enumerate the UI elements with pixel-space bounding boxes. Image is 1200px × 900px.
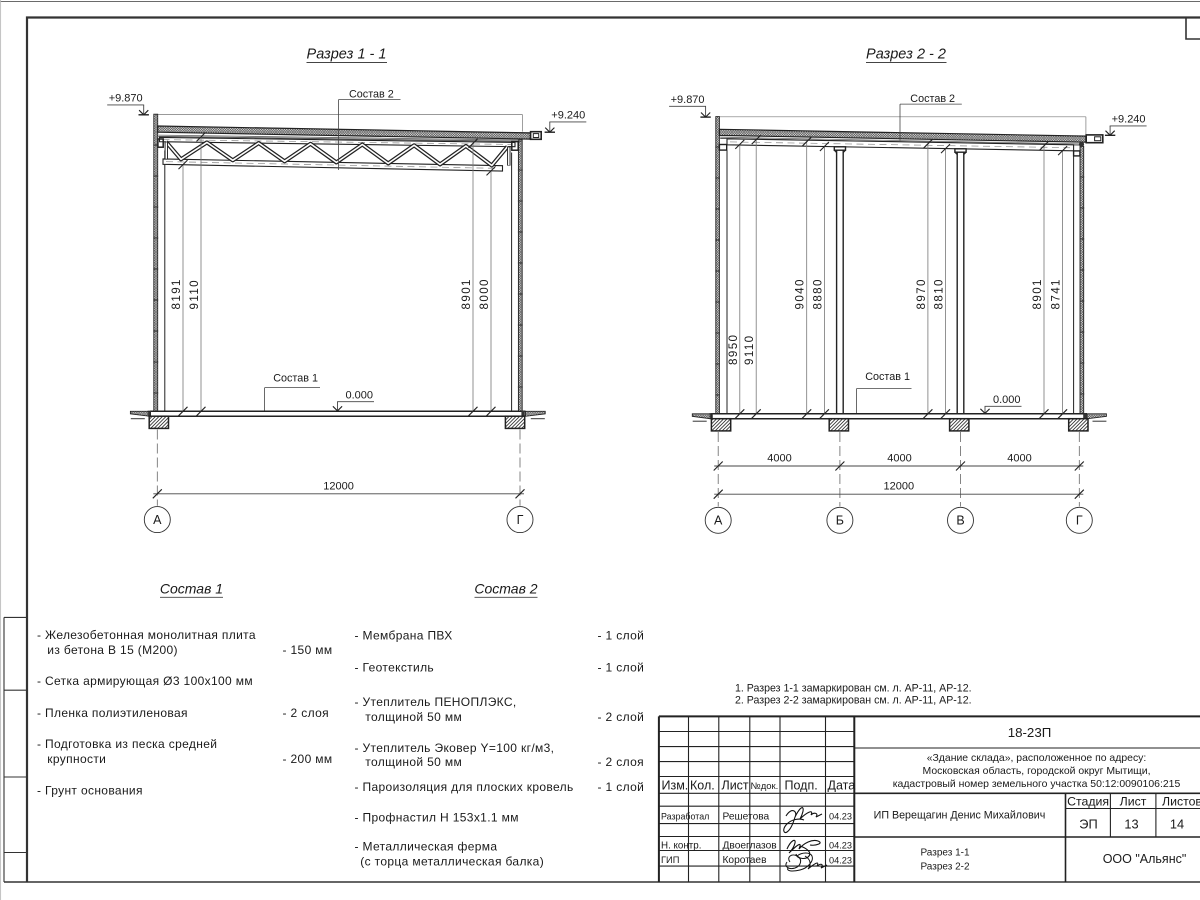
svg-text:04.23: 04.23 [829, 841, 852, 851]
svg-text:- Пленка полиэтиленовая: - Пленка полиэтиленовая [37, 706, 188, 720]
svg-text:ООО "Альянс": ООО "Альянс" [1103, 852, 1187, 866]
svg-text:Решетова: Решетова [723, 812, 770, 823]
svg-text:Н. контр.: Н. контр. [661, 841, 701, 852]
svg-text:ГИП: ГИП [661, 855, 679, 865]
svg-text:13: 13 [1124, 816, 1138, 831]
svg-text:Разрез 1 - 1: Разрез 1 - 1 [307, 47, 387, 63]
svg-text:Состав 1: Состав 1 [865, 371, 910, 383]
svg-text:+9.870: +9.870 [671, 94, 705, 106]
svg-text:Кол.: Кол. [690, 779, 715, 793]
svg-text:- Подготовка из песка средней: - Подготовка из песка средней [37, 737, 217, 751]
svg-text:- Грунт основания: - Грунт основания [37, 784, 143, 798]
svg-text:Состав 2: Состав 2 [349, 88, 394, 100]
svg-text:Состав 2: Состав 2 [910, 93, 955, 105]
svg-text:- Профнастил Н 153х1.1 мм: - Профнастил Н 153х1.1 мм [355, 810, 519, 824]
svg-text:А: А [153, 513, 162, 527]
svg-text:Г: Г [517, 513, 524, 527]
svg-text:8000: 8000 [478, 278, 491, 309]
svg-text:4000: 4000 [767, 453, 791, 465]
svg-text:- Железобетонная монолитная п: - Железобетонная монолитная плита [37, 628, 256, 642]
svg-text:ИП Верещагин Денис Михайлович: ИП Верещагин Денис Михайлович [874, 810, 1046, 822]
svg-text:9110: 9110 [743, 334, 756, 365]
svg-text:Лист: Лист [1120, 795, 1147, 809]
svg-text:+9.240: +9.240 [551, 110, 585, 122]
svg-text:- 1 слой: - 1 слой [598, 780, 645, 794]
svg-text:Состав 1: Состав 1 [160, 581, 223, 597]
svg-text:В: В [956, 514, 964, 528]
svg-text:- Утеплитель Эковер Y=100 кг/м: - Утеплитель Эковер Y=100 кг/м3, [355, 741, 555, 755]
svg-text:- Мембрана ПВХ: - Мембрана ПВХ [355, 628, 453, 642]
svg-text:0.000: 0.000 [346, 390, 374, 402]
svg-text:из бетона В 15 (М200): из бетона В 15 (М200) [47, 643, 178, 657]
svg-text:Б: Б [836, 514, 844, 528]
svg-text:№док.: №док. [751, 781, 779, 792]
svg-text:8810: 8810 [933, 278, 946, 309]
svg-text:04.23: 04.23 [829, 855, 852, 865]
svg-text:Дата: Дата [828, 779, 856, 793]
svg-text:Изм.: Изм. [662, 779, 689, 793]
svg-text:Разработал: Разработал [661, 812, 709, 822]
svg-text:- Геотекстиль: - Геотекстиль [355, 660, 435, 674]
svg-text:Стадия: Стадия [1067, 795, 1109, 809]
svg-text:- 150 мм: - 150 мм [283, 643, 333, 657]
svg-text:Состав 1: Состав 1 [273, 372, 318, 384]
svg-text:- 1 слой: - 1 слой [598, 660, 645, 674]
svg-text:- Сетка армирующая Ø3 100х100: - Сетка армирующая Ø3 100х100 мм [37, 674, 253, 688]
svg-text:4000: 4000 [1007, 453, 1031, 465]
svg-text:1. Разрез 1-1 замаркирован см.: 1. Разрез 1-1 замаркирован см. л. АР-11,… [735, 683, 972, 695]
svg-text:9110: 9110 [188, 279, 201, 310]
svg-text:- 2 слоя: - 2 слоя [598, 755, 644, 769]
svg-text:12000: 12000 [323, 480, 354, 492]
svg-text:2. Разрез 2-2 замаркирован см.: 2. Разрез 2-2 замаркирован см. л. АР-11,… [735, 695, 972, 707]
svg-text:0.000: 0.000 [993, 394, 1021, 406]
svg-text:(с торца металлическая балка): (с торца металлическая балка) [360, 854, 544, 868]
svg-text:А: А [714, 514, 723, 528]
svg-text:кадастровый номер земельного у: кадастровый номер земельного участка 50:… [893, 779, 1181, 790]
svg-text:Двоеглазов: Двоеглазов [723, 841, 777, 852]
svg-text:+9.870: +9.870 [109, 93, 143, 105]
svg-text:8901: 8901 [1031, 278, 1044, 309]
svg-text:- 200 мм: - 200 мм [283, 752, 333, 766]
svg-text:- 2 слоя: - 2 слоя [283, 706, 329, 720]
svg-text:Подп.: Подп. [785, 779, 818, 793]
svg-text:8191: 8191 [170, 278, 183, 309]
svg-text:- Пароизоляция для плоских кро: - Пароизоляция для плоских кровель [355, 780, 574, 794]
svg-text:04.23: 04.23 [829, 812, 852, 822]
svg-text:«Здание склада», расположенное: «Здание склада», расположенное по адресу… [927, 753, 1147, 764]
svg-text:Разрез 2 - 2: Разрез 2 - 2 [866, 47, 946, 63]
svg-text:8970: 8970 [915, 278, 928, 309]
svg-text:8901: 8901 [460, 278, 473, 309]
svg-text:9040: 9040 [794, 278, 807, 309]
svg-text:- Металлическая ферма: - Металлическая ферма [355, 840, 498, 854]
svg-text:- 2 слой: - 2 слой [598, 710, 645, 724]
svg-text:8950: 8950 [727, 334, 740, 365]
svg-text:крупности: крупности [47, 752, 106, 766]
svg-text:Г: Г [1076, 514, 1083, 528]
svg-text:8741: 8741 [1050, 278, 1063, 309]
svg-text:Разрез 1-1: Разрез 1-1 [920, 848, 970, 859]
svg-text:Состав 2: Состав 2 [474, 581, 537, 597]
svg-text:Московская область, городской: Московская область, городской округ Мыти… [923, 765, 1151, 777]
svg-text:Лист: Лист [722, 779, 749, 793]
svg-text:8880: 8880 [811, 278, 824, 309]
svg-text:Разрез 2-2: Разрез 2-2 [920, 862, 970, 873]
svg-text:Коротаев: Коротаев [723, 855, 767, 866]
svg-text:ЭП: ЭП [1079, 816, 1097, 831]
svg-text:- Утеплитель ПЕНОПЛЭКС,: - Утеплитель ПЕНОПЛЭКС, [355, 695, 517, 709]
svg-text:- 1 слой: - 1 слой [598, 628, 645, 642]
svg-text:толщиной 50 мм: толщиной 50 мм [365, 755, 462, 769]
svg-text:Листов: Листов [1162, 795, 1200, 809]
svg-text:18-23П: 18-23П [1008, 725, 1052, 740]
svg-text:14: 14 [1170, 816, 1184, 831]
svg-text:12000: 12000 [884, 481, 915, 493]
svg-text:толщиной 50 мм: толщиной 50 мм [365, 710, 462, 724]
svg-text:+9.240: +9.240 [1112, 114, 1146, 126]
svg-text:4000: 4000 [887, 453, 911, 465]
